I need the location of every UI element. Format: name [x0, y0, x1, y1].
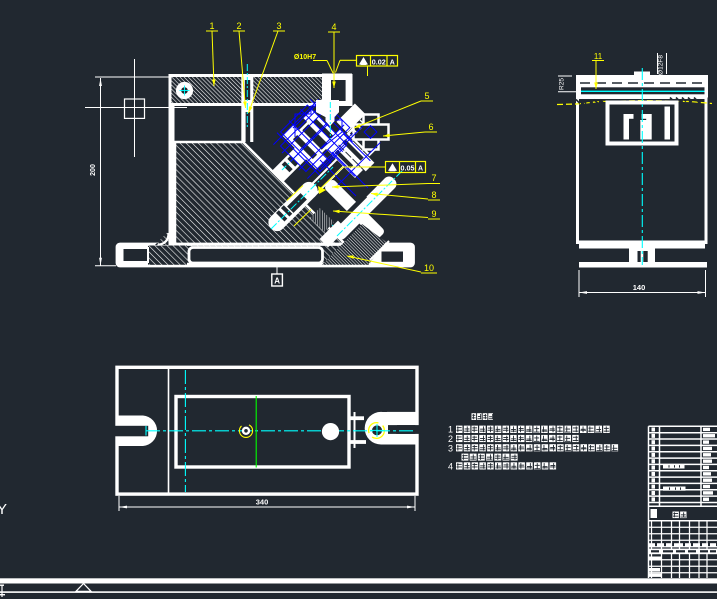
svg-text:140: 140: [633, 283, 646, 292]
svg-text:9: 9: [431, 209, 436, 219]
svg-text:11: 11: [594, 52, 603, 61]
svg-text:2: 2: [236, 21, 241, 31]
svg-text:A: A: [418, 166, 423, 173]
svg-text:200: 200: [90, 164, 97, 176]
svg-text:3: 3: [276, 21, 281, 31]
svg-text:0.05: 0.05: [401, 164, 415, 173]
svg-text:340: 340: [256, 498, 269, 507]
svg-text:0.02: 0.02: [372, 57, 386, 66]
svg-text:A: A: [390, 59, 395, 66]
svg-text:1: 1: [209, 21, 214, 31]
svg-text:4: 4: [331, 22, 336, 32]
svg-text:Ø10H7: Ø10H7: [294, 54, 316, 61]
svg-text:5: 5: [424, 91, 429, 101]
svg-text:8: 8: [431, 190, 436, 200]
svg-text:3: 3: [448, 443, 453, 453]
svg-text:2: 2: [448, 434, 453, 444]
svg-text:10: 10: [424, 263, 434, 273]
svg-text:A: A: [274, 277, 280, 286]
svg-text:R25: R25: [559, 78, 566, 90]
svg-text:6: 6: [428, 122, 433, 132]
svg-text:4: 4: [448, 461, 453, 471]
svg-text:Y: Y: [0, 501, 7, 518]
svg-text:Ø12F8: Ø12F8: [658, 55, 665, 75]
svg-text:7: 7: [431, 173, 436, 183]
